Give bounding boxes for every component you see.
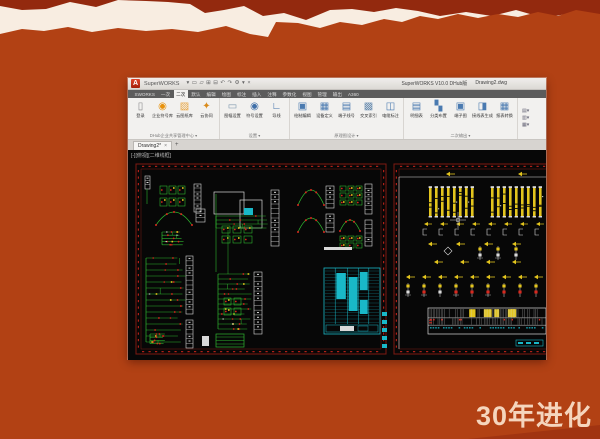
ribbon-button-icon: ◉ bbox=[158, 100, 167, 113]
ribbon-button-label: 分类布置 bbox=[430, 113, 447, 118]
ribbon-mini-buttons: ▤▾▥▾▦▾ bbox=[518, 98, 533, 139]
ribbon-button-icon: ∟ bbox=[272, 100, 282, 113]
ribbon-tab-绘图[interactable]: 绘图 bbox=[219, 90, 233, 98]
ribbon-button-label: 端子线号 bbox=[338, 113, 355, 118]
ribbon-button-label: 接线表生成 bbox=[472, 113, 493, 118]
ribbon-tab-编辑[interactable]: 编辑 bbox=[204, 90, 218, 98]
ribbon-tab-二次[interactable]: 二次 bbox=[174, 90, 188, 98]
quick-access-toolbar: ▾▭▱⊞⊟↶↷⚙▾× bbox=[186, 78, 250, 89]
ribbon-tab-注释[interactable]: 注释 bbox=[265, 90, 279, 98]
ribbon-button-icon: ▤ bbox=[342, 100, 351, 113]
ribbon-button-交叉索引[interactable]: ▩交叉索引 bbox=[358, 99, 379, 132]
ribbon-button-icon: ◨ bbox=[478, 100, 487, 113]
ribbon-tab-插入[interactable]: 插入 bbox=[250, 90, 264, 98]
ribbon-group-name: DHub企业共享管理中心 ▾ bbox=[130, 132, 217, 139]
ribbon-button-接线表生成[interactable]: ◨接线表生成 bbox=[472, 99, 493, 132]
drawing-content bbox=[128, 150, 546, 360]
ribbon-button-icon: ▚ bbox=[435, 100, 443, 113]
ribbon-tab-A360[interactable]: A360 bbox=[345, 90, 361, 98]
ribbon-tab-输出[interactable]: 输出 bbox=[330, 90, 344, 98]
ribbon-button-icon: ▩ bbox=[364, 100, 373, 113]
file-tab-drawing2[interactable]: Drawing2* × bbox=[133, 141, 172, 150]
ribbon-button-label: 设备定义 bbox=[316, 113, 333, 118]
ribbon-button-端子图[interactable]: ▣端子图 bbox=[450, 99, 471, 132]
ribbon-mini-icon[interactable]: ▦▾ bbox=[522, 123, 529, 128]
qat-icon[interactable]: ⊞ bbox=[206, 78, 211, 89]
new-file-tab-button[interactable]: + bbox=[175, 141, 179, 150]
ribbon-button-icon: ✦ bbox=[202, 100, 210, 113]
qat-icon[interactable]: ↶ bbox=[220, 78, 225, 89]
qat-icon[interactable]: ▭ bbox=[192, 78, 197, 89]
ribbon-button-明细表[interactable]: ▤明细表 bbox=[406, 99, 427, 132]
ribbon-group-name: 设置 ▾ bbox=[222, 132, 287, 139]
ribbon-tab-参数化[interactable]: 参数化 bbox=[280, 90, 299, 98]
ribbon-button-登录[interactable]: ▯登录 bbox=[130, 99, 151, 132]
ribbon-button-icon: ◫ bbox=[386, 100, 395, 113]
ribbon-button-报表转换[interactable]: ▦报表转换 bbox=[494, 99, 515, 132]
document-name: Drawing2.dwg bbox=[475, 80, 507, 87]
qat-icon[interactable]: ⚙ bbox=[235, 78, 240, 89]
ribbon-button-导线[interactable]: ∟导线 bbox=[266, 99, 287, 132]
ribbon-button-label: 企业符号库 bbox=[152, 113, 173, 118]
file-tab-close-icon[interactable]: × bbox=[164, 142, 167, 150]
ribbon-tab-管理[interactable]: 管理 bbox=[315, 90, 329, 98]
qat-icon[interactable]: ▱ bbox=[199, 78, 203, 89]
viewport-controls-label[interactable]: [-][俯视][二维线框] bbox=[131, 152, 171, 159]
drawing-canvas[interactable]: [-][俯视][二维线框] bbox=[128, 150, 546, 360]
title-bar-document-title: SuperWORKS V10.0 DHub版 Drawing2.dwg bbox=[401, 80, 507, 87]
qat-icon[interactable]: ▾ bbox=[186, 78, 189, 89]
ribbon-button-icon: ▯ bbox=[138, 100, 144, 113]
ribbon-tab-默认[interactable]: 默认 bbox=[189, 90, 203, 98]
ribbon-button-icon: ▨ bbox=[180, 100, 189, 113]
app-version-title: SuperWORKS V10.0 DHub版 bbox=[401, 80, 467, 87]
ribbon-group-name: 二次输出 ▾ bbox=[406, 132, 515, 139]
app-title-left: SuperWORKS bbox=[144, 81, 179, 87]
qat-icon[interactable]: ⊟ bbox=[213, 78, 218, 89]
ribbon-button-icon: ▦ bbox=[320, 100, 329, 113]
ribbon-button-icon: ▣ bbox=[456, 100, 465, 113]
ribbon-group: ▣绘制编辑▦设备定义▤端子线号▩交叉索引◫电缆标注原理图设计 ▾ bbox=[290, 98, 404, 139]
ribbon-button-端子线号[interactable]: ▤端子线号 bbox=[336, 99, 357, 132]
ribbon-button-label: 云协同 bbox=[200, 113, 213, 118]
qat-icon[interactable]: ↷ bbox=[228, 78, 233, 89]
ribbon-button-label: 交叉索引 bbox=[360, 113, 377, 118]
ribbon-button-label: 图幅设置 bbox=[224, 113, 241, 118]
ribbon-tab-标注[interactable]: 标注 bbox=[234, 90, 248, 98]
ribbon-button-设备定义[interactable]: ▦设备定义 bbox=[314, 99, 335, 132]
ribbon-group: ▯登录◉企业符号库▨云图纸库✦云协同DHub企业共享管理中心 ▾ bbox=[128, 98, 220, 139]
slide-caption: 30年进化 bbox=[476, 394, 592, 433]
ribbon-mini-icon[interactable]: ▥▾ bbox=[522, 116, 529, 121]
ribbon-tab-视图[interactable]: 视图 bbox=[300, 90, 314, 98]
ribbon-toolbar: ▯登录◉企业符号库▨云图纸库✦云协同DHub企业共享管理中心 ▾▭图幅设置◉符号… bbox=[128, 98, 546, 140]
ribbon-group: ▭图幅设置◉符号设置∟导线设置 ▾ bbox=[220, 98, 290, 139]
qat-icon[interactable]: ▾ bbox=[242, 78, 245, 89]
ribbon-button-icon: ▣ bbox=[298, 100, 307, 113]
ribbon-button-label: 云图纸库 bbox=[176, 113, 193, 118]
app-logo-icon[interactable]: A bbox=[131, 79, 140, 88]
ribbon-button-符号设置[interactable]: ◉符号设置 bbox=[244, 99, 265, 132]
ribbon-button-企业符号库[interactable]: ◉企业符号库 bbox=[152, 99, 173, 132]
ribbon-button-分类布置[interactable]: ▚分类布置 bbox=[428, 99, 449, 132]
ribbon-button-icon: ▤ bbox=[412, 100, 421, 113]
ribbon-button-绘制编辑[interactable]: ▣绘制编辑 bbox=[292, 99, 313, 132]
ribbon-button-label: 电缆标注 bbox=[382, 113, 399, 118]
ribbon-group-name: 原理图设计 ▾ bbox=[292, 132, 401, 139]
ribbon-button-label: 明细表 bbox=[410, 113, 423, 118]
qat-icon[interactable]: × bbox=[247, 78, 250, 89]
ribbon-mini-icon[interactable]: ▤▾ bbox=[522, 109, 529, 114]
cad-application-window: A SuperWORKS ▾▭▱⊞⊟↶↷⚙▾× SuperWORKS V10.0… bbox=[128, 78, 546, 359]
ribbon-tab-一次[interactable]: 一次 bbox=[158, 90, 172, 98]
ribbon-tab-bar: SWORKS一次二次默认编辑绘图标注插入注释参数化视图管理输出A360 bbox=[128, 90, 546, 98]
file-tab-bar: Drawing2* × + bbox=[128, 140, 546, 150]
ribbon-button-电缆标注[interactable]: ◫电缆标注 bbox=[380, 99, 401, 132]
ribbon-group: ▤明细表▚分类布置▣端子图◨接线表生成▦报表转换二次输出 ▾ bbox=[404, 98, 518, 139]
ribbon-button-icon: ▦ bbox=[500, 100, 509, 113]
ribbon-button-图幅设置[interactable]: ▭图幅设置 bbox=[222, 99, 243, 132]
ribbon-button-label: 导线 bbox=[272, 113, 280, 118]
ribbon-tab-SWORKS[interactable]: SWORKS bbox=[132, 90, 157, 98]
ribbon-button-icon: ▭ bbox=[228, 100, 237, 113]
ribbon-button-label: 绘制编辑 bbox=[294, 113, 311, 118]
title-bar: A SuperWORKS ▾▭▱⊞⊟↶↷⚙▾× SuperWORKS V10.0… bbox=[128, 78, 546, 90]
ribbon-button-云图纸库[interactable]: ▨云图纸库 bbox=[174, 99, 195, 132]
ribbon-button-icon: ◉ bbox=[250, 100, 259, 113]
file-tab-label: Drawing2* bbox=[138, 142, 161, 150]
ribbon-button-label: 符号设置 bbox=[246, 113, 263, 118]
ribbon-button-label: 报表转换 bbox=[496, 113, 513, 118]
ribbon-button-label: 登录 bbox=[136, 113, 144, 118]
ribbon-button-云协同[interactable]: ✦云协同 bbox=[196, 99, 217, 132]
ribbon-button-label: 端子图 bbox=[454, 113, 467, 118]
